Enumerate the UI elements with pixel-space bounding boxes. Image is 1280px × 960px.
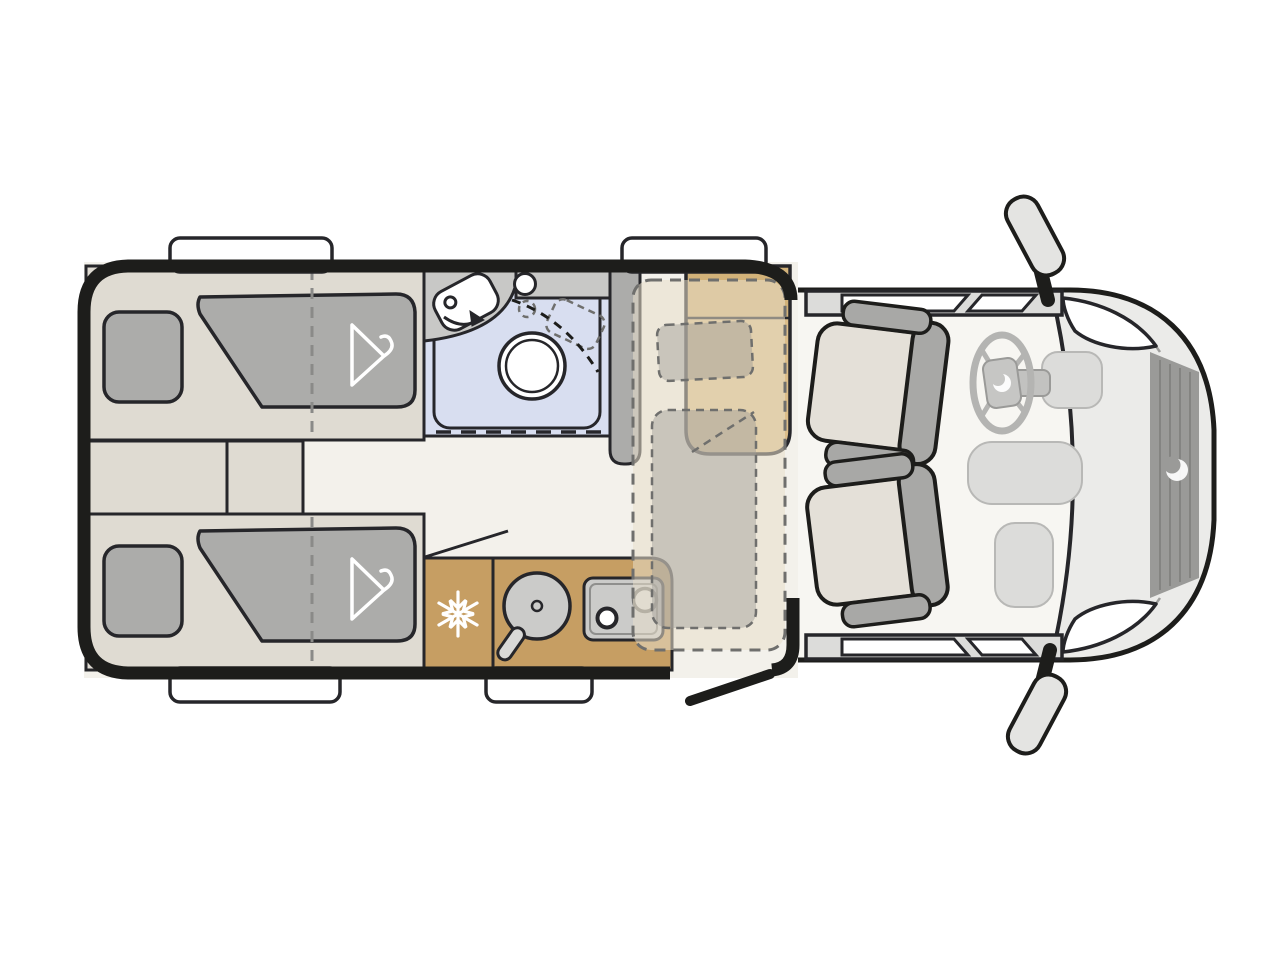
cab <box>795 191 1214 759</box>
drop-down-bed-pillow <box>657 321 754 382</box>
bathroom <box>424 266 610 436</box>
dashboard-console-center <box>968 442 1082 504</box>
pillow-lower <box>104 546 182 636</box>
wing-mirror-left <box>1000 191 1069 300</box>
drop-down-bed-overlay <box>633 280 785 650</box>
front-grille <box>1150 352 1199 598</box>
entry-door-open-leaf <box>690 674 770 701</box>
step-cabinet-right <box>227 441 303 514</box>
pillow-upper <box>104 312 182 402</box>
cab-door-bottom <box>806 635 1062 659</box>
vanity-tap <box>515 274 536 295</box>
door-window-bottom-large <box>842 639 968 655</box>
habitation-area <box>84 238 798 702</box>
floorplan-page <box>0 0 1280 960</box>
door-window-top-small <box>968 295 1036 311</box>
step-cabinet-left <box>86 441 227 514</box>
burner-left <box>598 609 617 628</box>
door-window-bottom-small <box>968 639 1036 655</box>
floorplan-svg <box>0 0 1280 960</box>
dashboard-console-lower <box>995 523 1053 607</box>
drop-down-bed-duvet <box>652 410 756 628</box>
wing-mirror-right <box>1002 650 1071 759</box>
